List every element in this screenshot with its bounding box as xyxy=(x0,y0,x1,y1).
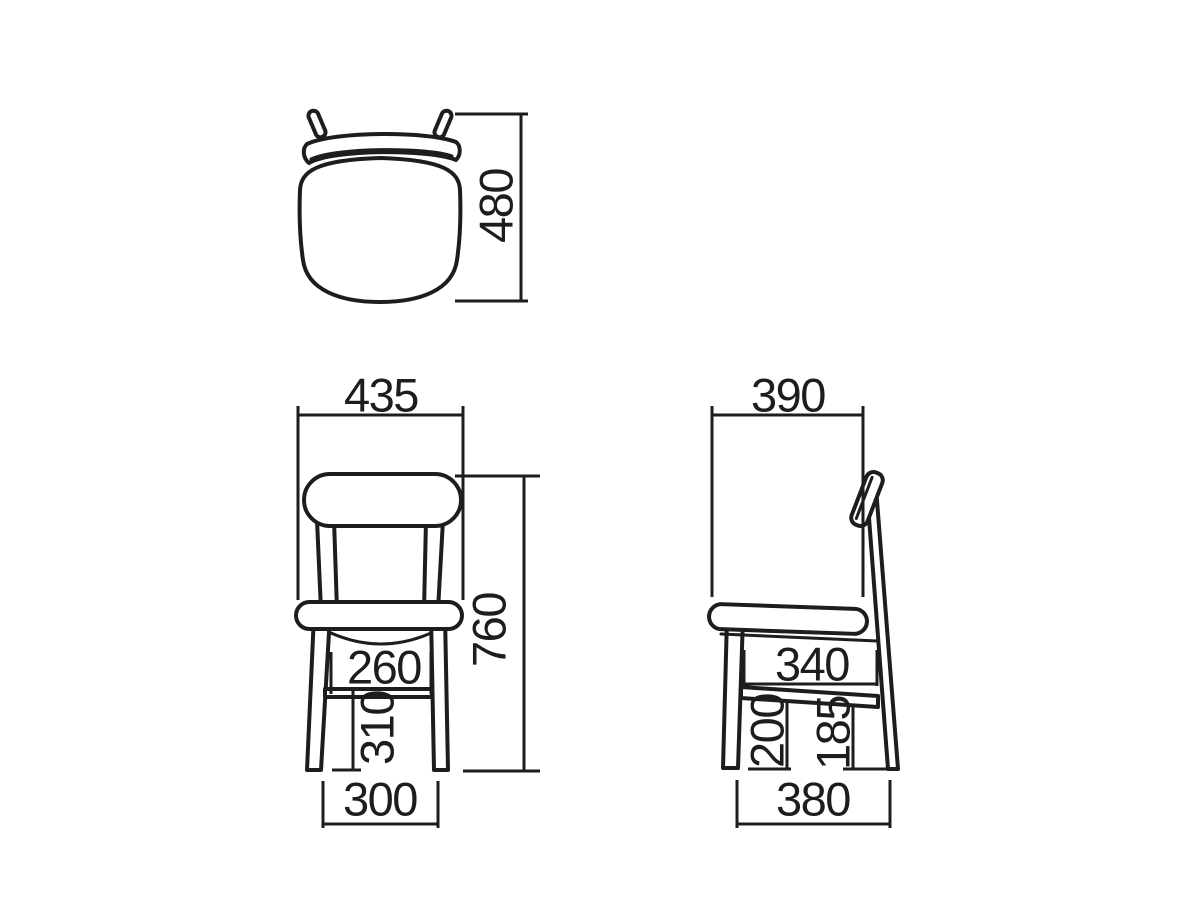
dim-label-300: 300 xyxy=(343,773,417,826)
top-view xyxy=(300,109,461,302)
front-backrest xyxy=(304,474,461,526)
dim-label-390: 390 xyxy=(751,369,825,422)
dim-label-380: 380 xyxy=(776,773,850,826)
side-seat xyxy=(709,604,868,634)
front-left-post xyxy=(317,520,337,610)
top-view-seat-outline xyxy=(300,158,461,302)
dim-label-340: 340 xyxy=(775,638,849,691)
dim-label-760: 760 xyxy=(463,593,516,667)
chair-dimension-drawing: 480 435 760 260 310 xyxy=(0,0,1200,900)
front-seat xyxy=(296,602,462,629)
front-right-post xyxy=(424,520,443,610)
dim-label-480: 480 xyxy=(470,169,523,243)
top-view-left-horn xyxy=(307,109,327,139)
top-view-dimensions: 480 xyxy=(455,114,528,301)
dim-label-260: 260 xyxy=(347,641,421,694)
drawing-canvas: 480 435 760 260 310 xyxy=(0,0,1200,900)
dim-label-435: 435 xyxy=(344,369,418,422)
side-back-post xyxy=(866,475,898,769)
dim-label-310: 310 xyxy=(351,691,404,765)
dim-label-185: 185 xyxy=(807,696,860,770)
top-view-right-horn xyxy=(433,109,453,139)
side-view xyxy=(709,470,898,769)
dim-label-200: 200 xyxy=(741,694,794,768)
